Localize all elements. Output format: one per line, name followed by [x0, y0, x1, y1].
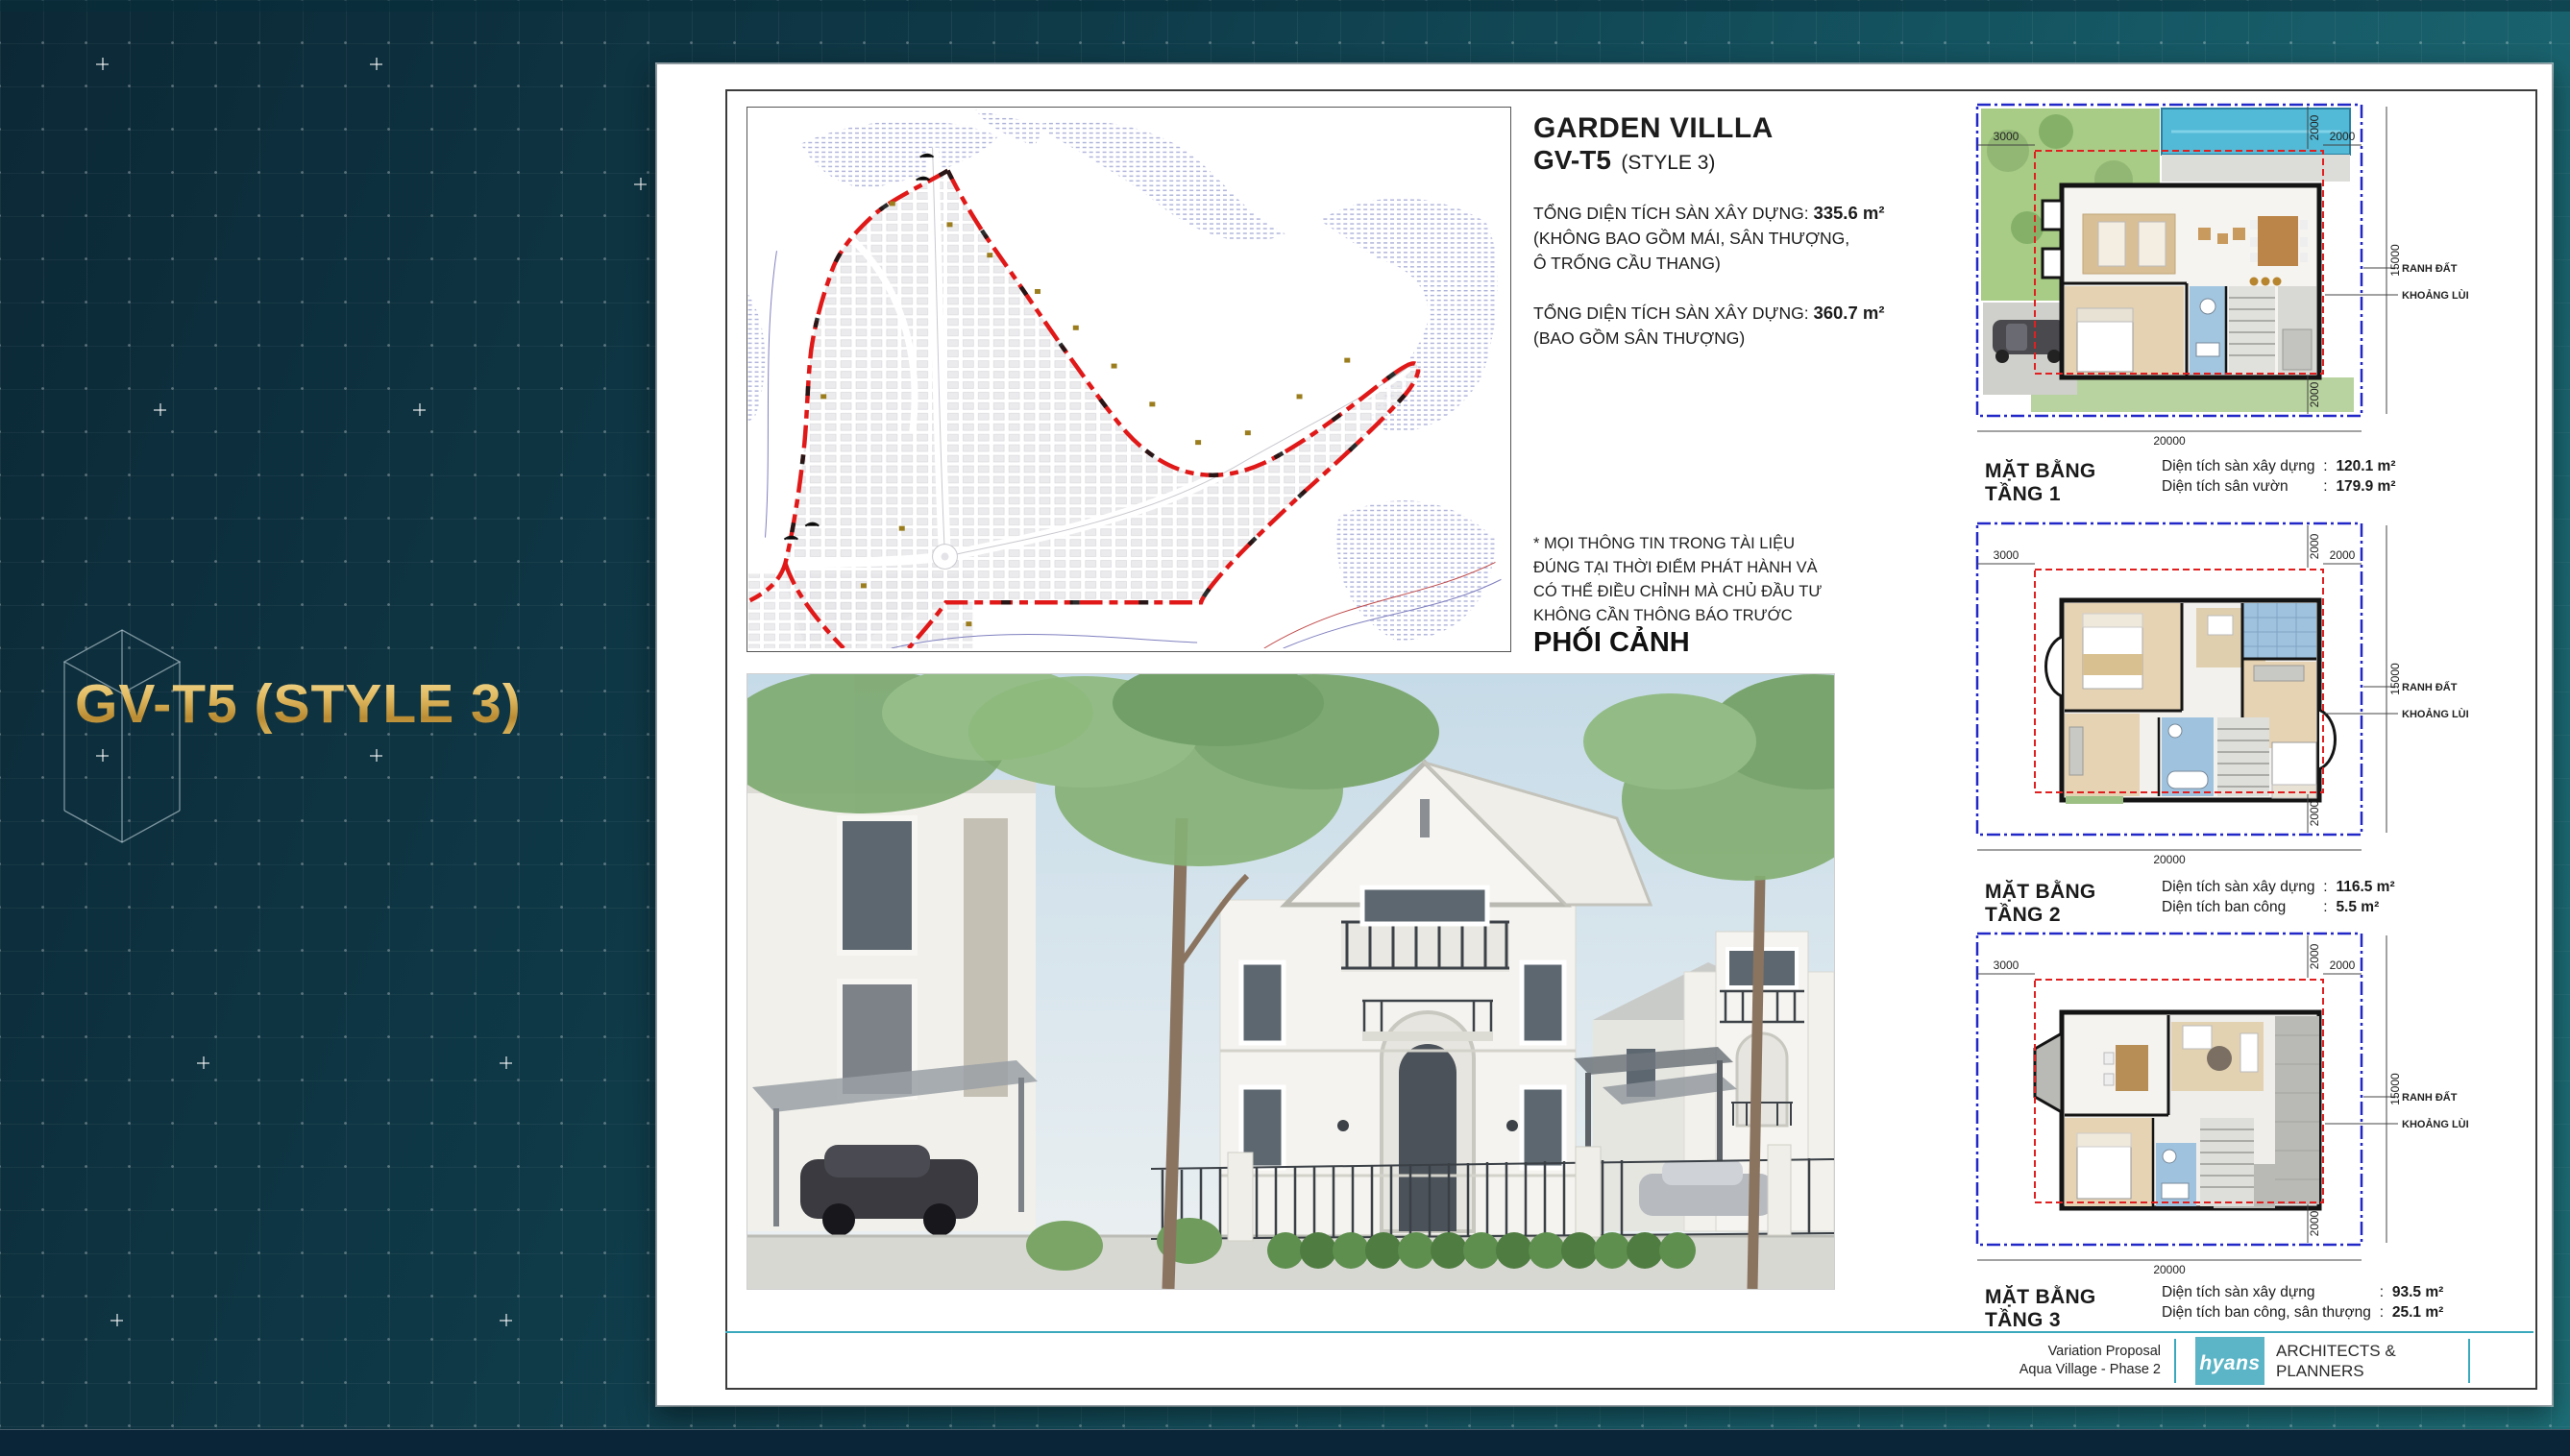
stat-separator: : [2375, 1282, 2388, 1302]
area-note: (BAO GỒM SÂN THƯỢNG) [1533, 326, 1908, 351]
stat-value: 120.1 m² [2336, 456, 2395, 476]
stat-separator: : [2375, 1302, 2388, 1323]
stat-label: Diện tích sân vườn [2162, 476, 2314, 497]
plus-mark [500, 1314, 512, 1326]
hyans-logo: hyans [2195, 1337, 2264, 1385]
cube-wireframe-icon [56, 622, 190, 882]
stat-separator: : [2318, 897, 2332, 917]
dim-right-setback: 2000 [2330, 548, 2356, 562]
top-strip [0, 0, 2570, 12]
dim-lot-depth: 15000 [2388, 244, 2402, 277]
disclaimer-line: ĐÚNG TẠI THỜI ĐIỂM PHÁT HÀNH VÀ [1533, 556, 1898, 580]
dim-lot-depth: 15000 [2388, 663, 2402, 695]
area-block-2: TỔNG DIỆN TÍCH SÀN XÂY DỰNG: 360.7 m² (B… [1533, 301, 1908, 351]
plus-mark [634, 178, 647, 190]
boundary-label: RANH ĐẤT [2402, 1091, 2458, 1104]
stat-value: 93.5 m² [2392, 1282, 2443, 1302]
dim-lot-width: 20000 [2153, 434, 2186, 448]
document-title: GARDEN VILLLA [1533, 112, 1908, 145]
floor-plan-1: 3000 2000 2000 15000 2000 20000 RANH ĐẤT… [1970, 93, 2496, 450]
stat-separator: : [2318, 877, 2332, 897]
perspective-render [747, 673, 1835, 1290]
document-code: GV-T5 [1533, 145, 1611, 175]
dim-top-setback: 2000 [2308, 533, 2321, 559]
document-style-note: (STYLE 3) [1621, 152, 1715, 174]
area-label: TỔNG DIỆN TÍCH SÀN XÂY DỰNG: [1533, 303, 1809, 323]
plan-1-title: MẶT BẰNG TẦNG 1 [1985, 460, 2156, 506]
plan-3-caption: MẶT BẰNG TẦNG 3 Diện tích sàn xây dựng :… [1985, 1282, 2504, 1332]
plus-mark [96, 58, 109, 70]
area-note: (KHÔNG BAO GỒM MÁI, SÂN THƯỢNG, [1533, 226, 1908, 251]
bottom-bar [0, 1429, 2570, 1456]
plus-mark [413, 403, 426, 416]
plus-mark [370, 58, 382, 70]
project-name: Variation Proposal Aqua Village - Phase … [2019, 1343, 2174, 1379]
plus-mark [110, 1314, 123, 1326]
area-block-1: TỔNG DIỆN TÍCH SÀN XÂY DỰNG: 335.6 m² (K… [1533, 201, 1908, 276]
setback-label: KHOẢNG LÙI [2402, 1118, 2469, 1130]
document-header: GARDEN VILLLA GV-T5 (STYLE 3) TỔNG DIỆN … [1533, 112, 1908, 351]
dim-left-setback: 3000 [1994, 959, 2019, 972]
logo-text: hyans [2199, 1343, 2260, 1385]
boundary-label: RANH ĐẤT [2402, 262, 2458, 275]
dim-right-setback: 2000 [2330, 959, 2356, 972]
dim-bottom-setback: 2000 [2308, 1210, 2321, 1236]
dim-left-setback: 3000 [1994, 130, 2019, 143]
dim-bottom-setback: 2000 [2308, 800, 2321, 826]
dim-right-setback: 2000 [2330, 130, 2356, 143]
footer-divider [2174, 1339, 2176, 1383]
firm-name: ARCHITECTS & PLANNERS [2276, 1341, 2468, 1381]
title-block: Variation Proposal Aqua Village - Phase … [725, 1331, 2533, 1388]
dim-bottom-setback: 2000 [2308, 381, 2321, 407]
stat-separator: : [2318, 476, 2332, 497]
area-value: 335.6 m² [1813, 203, 1884, 223]
dim-lot-depth: 15000 [2388, 1073, 2402, 1105]
dim-left-setback: 3000 [1994, 548, 2019, 562]
disclaimer-line: * MỌI THÔNG TIN TRONG TÀI LIỆU [1533, 532, 1898, 556]
document-page: GARDEN VILLLA GV-T5 (STYLE 3) TỔNG DIỆN … [656, 63, 2553, 1406]
slide-background: GV-T5 (STYLE 3) [0, 0, 2570, 1456]
stat-label: Diện tích sàn xây dựng [2162, 1282, 2371, 1302]
stat-label: Diện tích sàn xây dựng [2162, 877, 2314, 897]
dim-top-setback: 2000 [2308, 114, 2321, 140]
disclaimer-line: KHÔNG CẦN THÔNG BÁO TRƯỚC [1533, 604, 1898, 628]
stat-value: 25.1 m² [2392, 1302, 2443, 1323]
stat-label: Diện tích ban công, sân thượng [2162, 1302, 2371, 1323]
boundary-label: RANH ĐẤT [2402, 681, 2458, 693]
plan-2-caption: MẶT BẰNG TẦNG 2 Diện tích sàn xây dựng :… [1985, 877, 2504, 927]
site-map [747, 108, 1507, 648]
disclaimer-note: * MỌI THÔNG TIN TRONG TÀI LIỆU ĐÚNG TẠI … [1533, 532, 1898, 628]
dim-top-setback: 2000 [2308, 943, 2321, 969]
setback-label: KHOẢNG LÙI [2402, 708, 2469, 720]
floor-plan-3: 3000 2000 2000 15000 2000 20000 RANH ĐẤT… [1970, 922, 2496, 1279]
floor-plan-2: 3000 2000 2000 15000 2000 20000 RANH ĐẤT… [1970, 512, 2496, 869]
firm-line: PLANNERS [2276, 1361, 2468, 1381]
plus-mark [154, 403, 166, 416]
stat-value: 116.5 m² [2336, 877, 2394, 897]
area-label: TỔNG DIỆN TÍCH SÀN XÂY DỰNG: [1533, 204, 1809, 223]
site-map-panel [747, 107, 1511, 652]
firm-line: ARCHITECTS & [2276, 1341, 2468, 1361]
disclaimer-line: CÓ THỂ ĐIỀU CHỈNH MÀ CHỦ ĐẦU TƯ [1533, 580, 1898, 604]
plus-mark [370, 749, 382, 762]
stat-value: 5.5 m² [2336, 897, 2394, 917]
plan-1-caption: MẶT BẰNG TẦNG 1 Diện tích sàn xây dựng :… [1985, 456, 2504, 506]
stat-separator: : [2318, 456, 2332, 476]
stat-label: Diện tích sàn xây dựng [2162, 456, 2314, 476]
plan-2-title: MẶT BẰNG TẦNG 2 [1985, 881, 2156, 927]
plus-mark [197, 1056, 209, 1069]
plus-mark [500, 1056, 512, 1069]
project-line: Variation Proposal [2019, 1343, 2161, 1361]
setback-label: KHOẢNG LÙI [2402, 289, 2469, 302]
footer-divider [2468, 1339, 2470, 1383]
plan-3-title: MẶT BẰNG TẦNG 3 [1985, 1286, 2156, 1332]
stat-value: 179.9 m² [2336, 476, 2395, 497]
area-note: Ô TRỐNG CẦU THANG) [1533, 251, 1908, 276]
perspective-heading: PHỐI CẢNH [1533, 627, 1690, 659]
dim-lot-width: 20000 [2153, 1263, 2186, 1276]
dim-lot-width: 20000 [2153, 853, 2186, 866]
project-line: Aqua Village - Phase 2 [2019, 1361, 2161, 1379]
area-value: 360.7 m² [1813, 303, 1884, 323]
stat-label: Diện tích ban công [2162, 897, 2314, 917]
slide-title: GV-T5 (STYLE 3) [75, 672, 522, 736]
